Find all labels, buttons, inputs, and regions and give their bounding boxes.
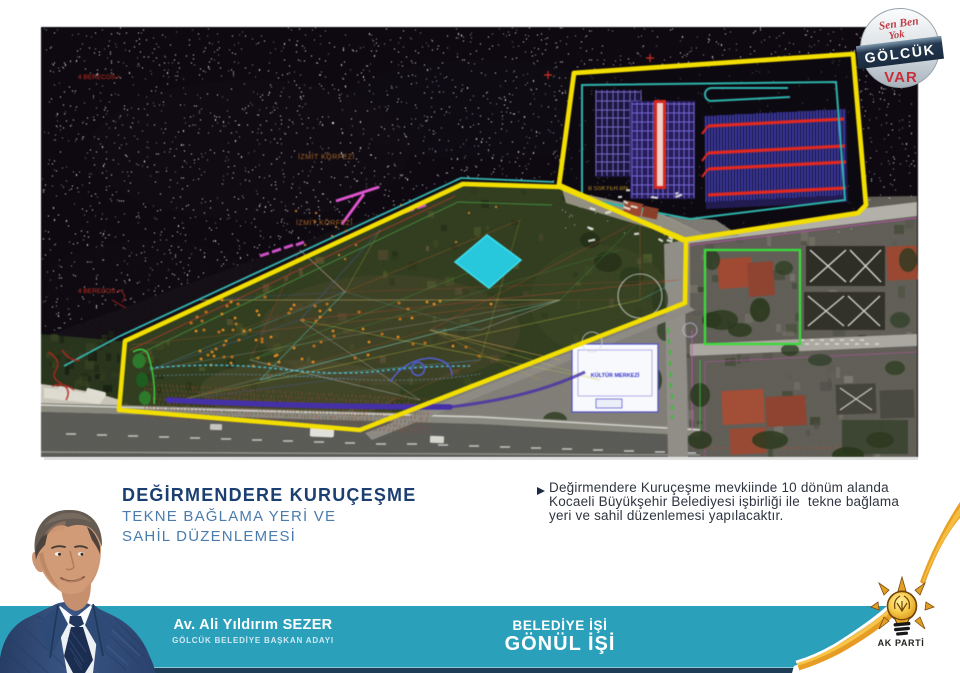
svg-text:VAR: VAR xyxy=(884,69,918,86)
svg-text:İZMİT KÖRFEZİ: İZMİT KÖRFEZİ xyxy=(298,152,355,161)
svg-text:B SSKYER BN: B SSKYER BN xyxy=(588,186,628,192)
svg-text:4 BERECOS +: 4 BERECOS + xyxy=(78,74,121,81)
svg-text:Yok: Yok xyxy=(888,29,906,42)
svg-text:4 BERECOS +: 4 BERECOS + xyxy=(78,288,121,295)
svg-text:AK PARTİ: AK PARTİ xyxy=(878,638,925,648)
svg-text:KÜLTÜR MERKEZİ: KÜLTÜR MERKEZİ xyxy=(591,372,640,379)
svg-text:İZMİT KÖRFEZİ: İZMİT KÖRFEZİ xyxy=(296,218,353,227)
